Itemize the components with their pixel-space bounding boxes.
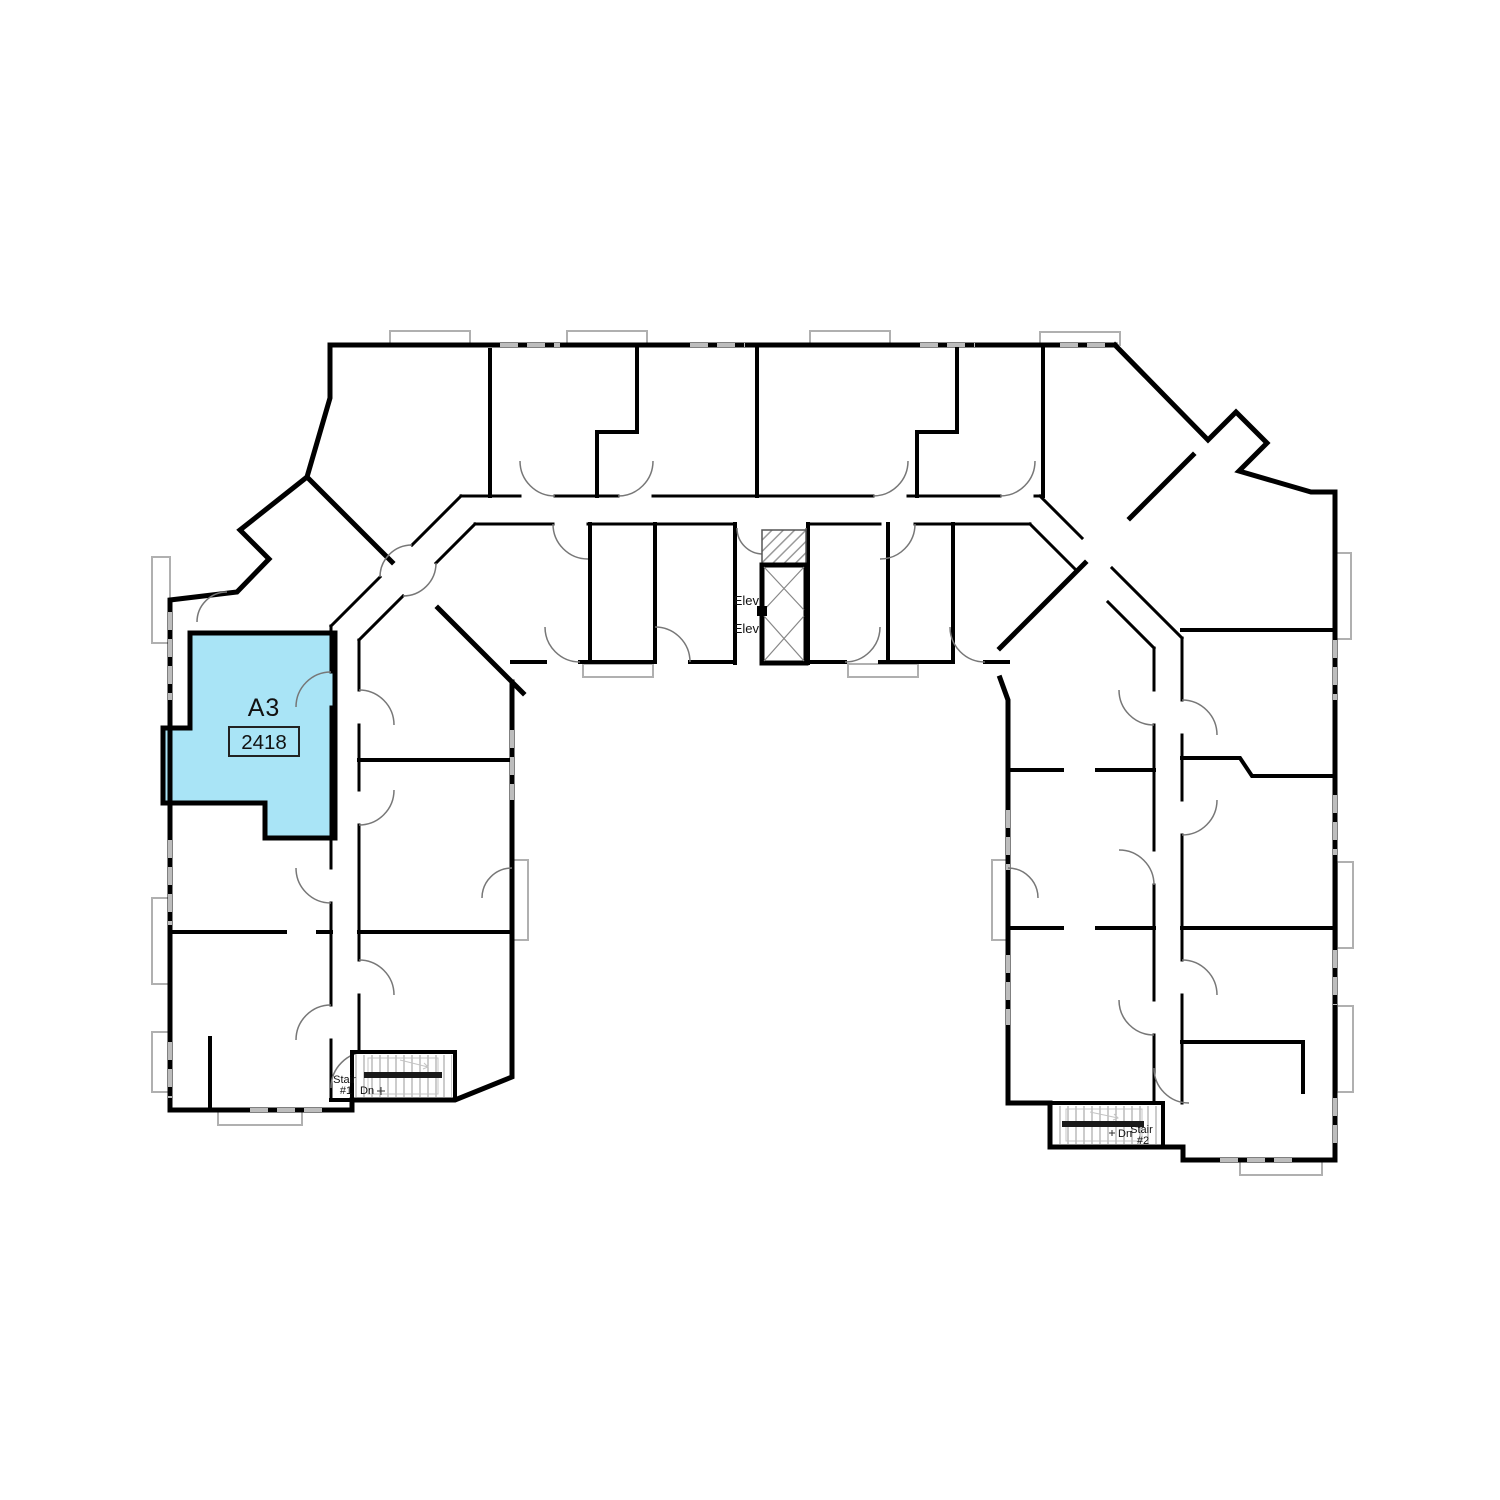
unit-number-label: 2418 — [241, 731, 287, 754]
elevator-shaft — [762, 565, 806, 663]
stair-1-label: Stair #1 — [333, 1074, 359, 1097]
corridor-walls — [331, 496, 1182, 1103]
elevator-label-2: Elev — [734, 621, 760, 636]
stair-1-dn-label: Dn — [360, 1085, 374, 1097]
elevator-label-1: Elev — [734, 593, 760, 608]
exterior-walls — [170, 345, 1335, 1160]
elevator-core — [757, 530, 806, 663]
window-strips — [170, 345, 1335, 1160]
floor-plan-page: A3 2418 Elev Elev Stair #1 Dn Dn Stair #… — [0, 0, 1500, 1500]
unit-type-label: A3 — [248, 694, 281, 722]
floor-plan-svg: A3 2418 Elev Elev Stair #1 Dn Dn Stair #… — [0, 0, 1500, 1500]
elevator-vestibule-hatch — [762, 530, 806, 565]
interior-walls — [170, 345, 1335, 1110]
